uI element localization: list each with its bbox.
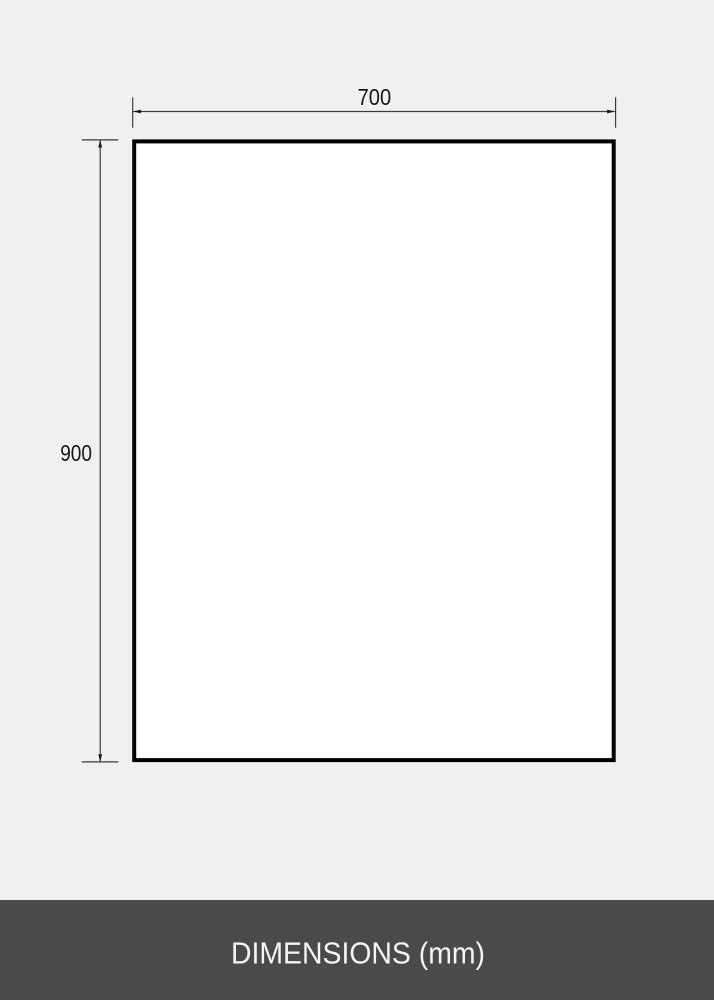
svg-text:900: 900 [60, 440, 92, 466]
svg-text:700: 700 [358, 84, 392, 110]
svg-text:DIMENSIONS (mm): DIMENSIONS (mm) [231, 936, 485, 971]
